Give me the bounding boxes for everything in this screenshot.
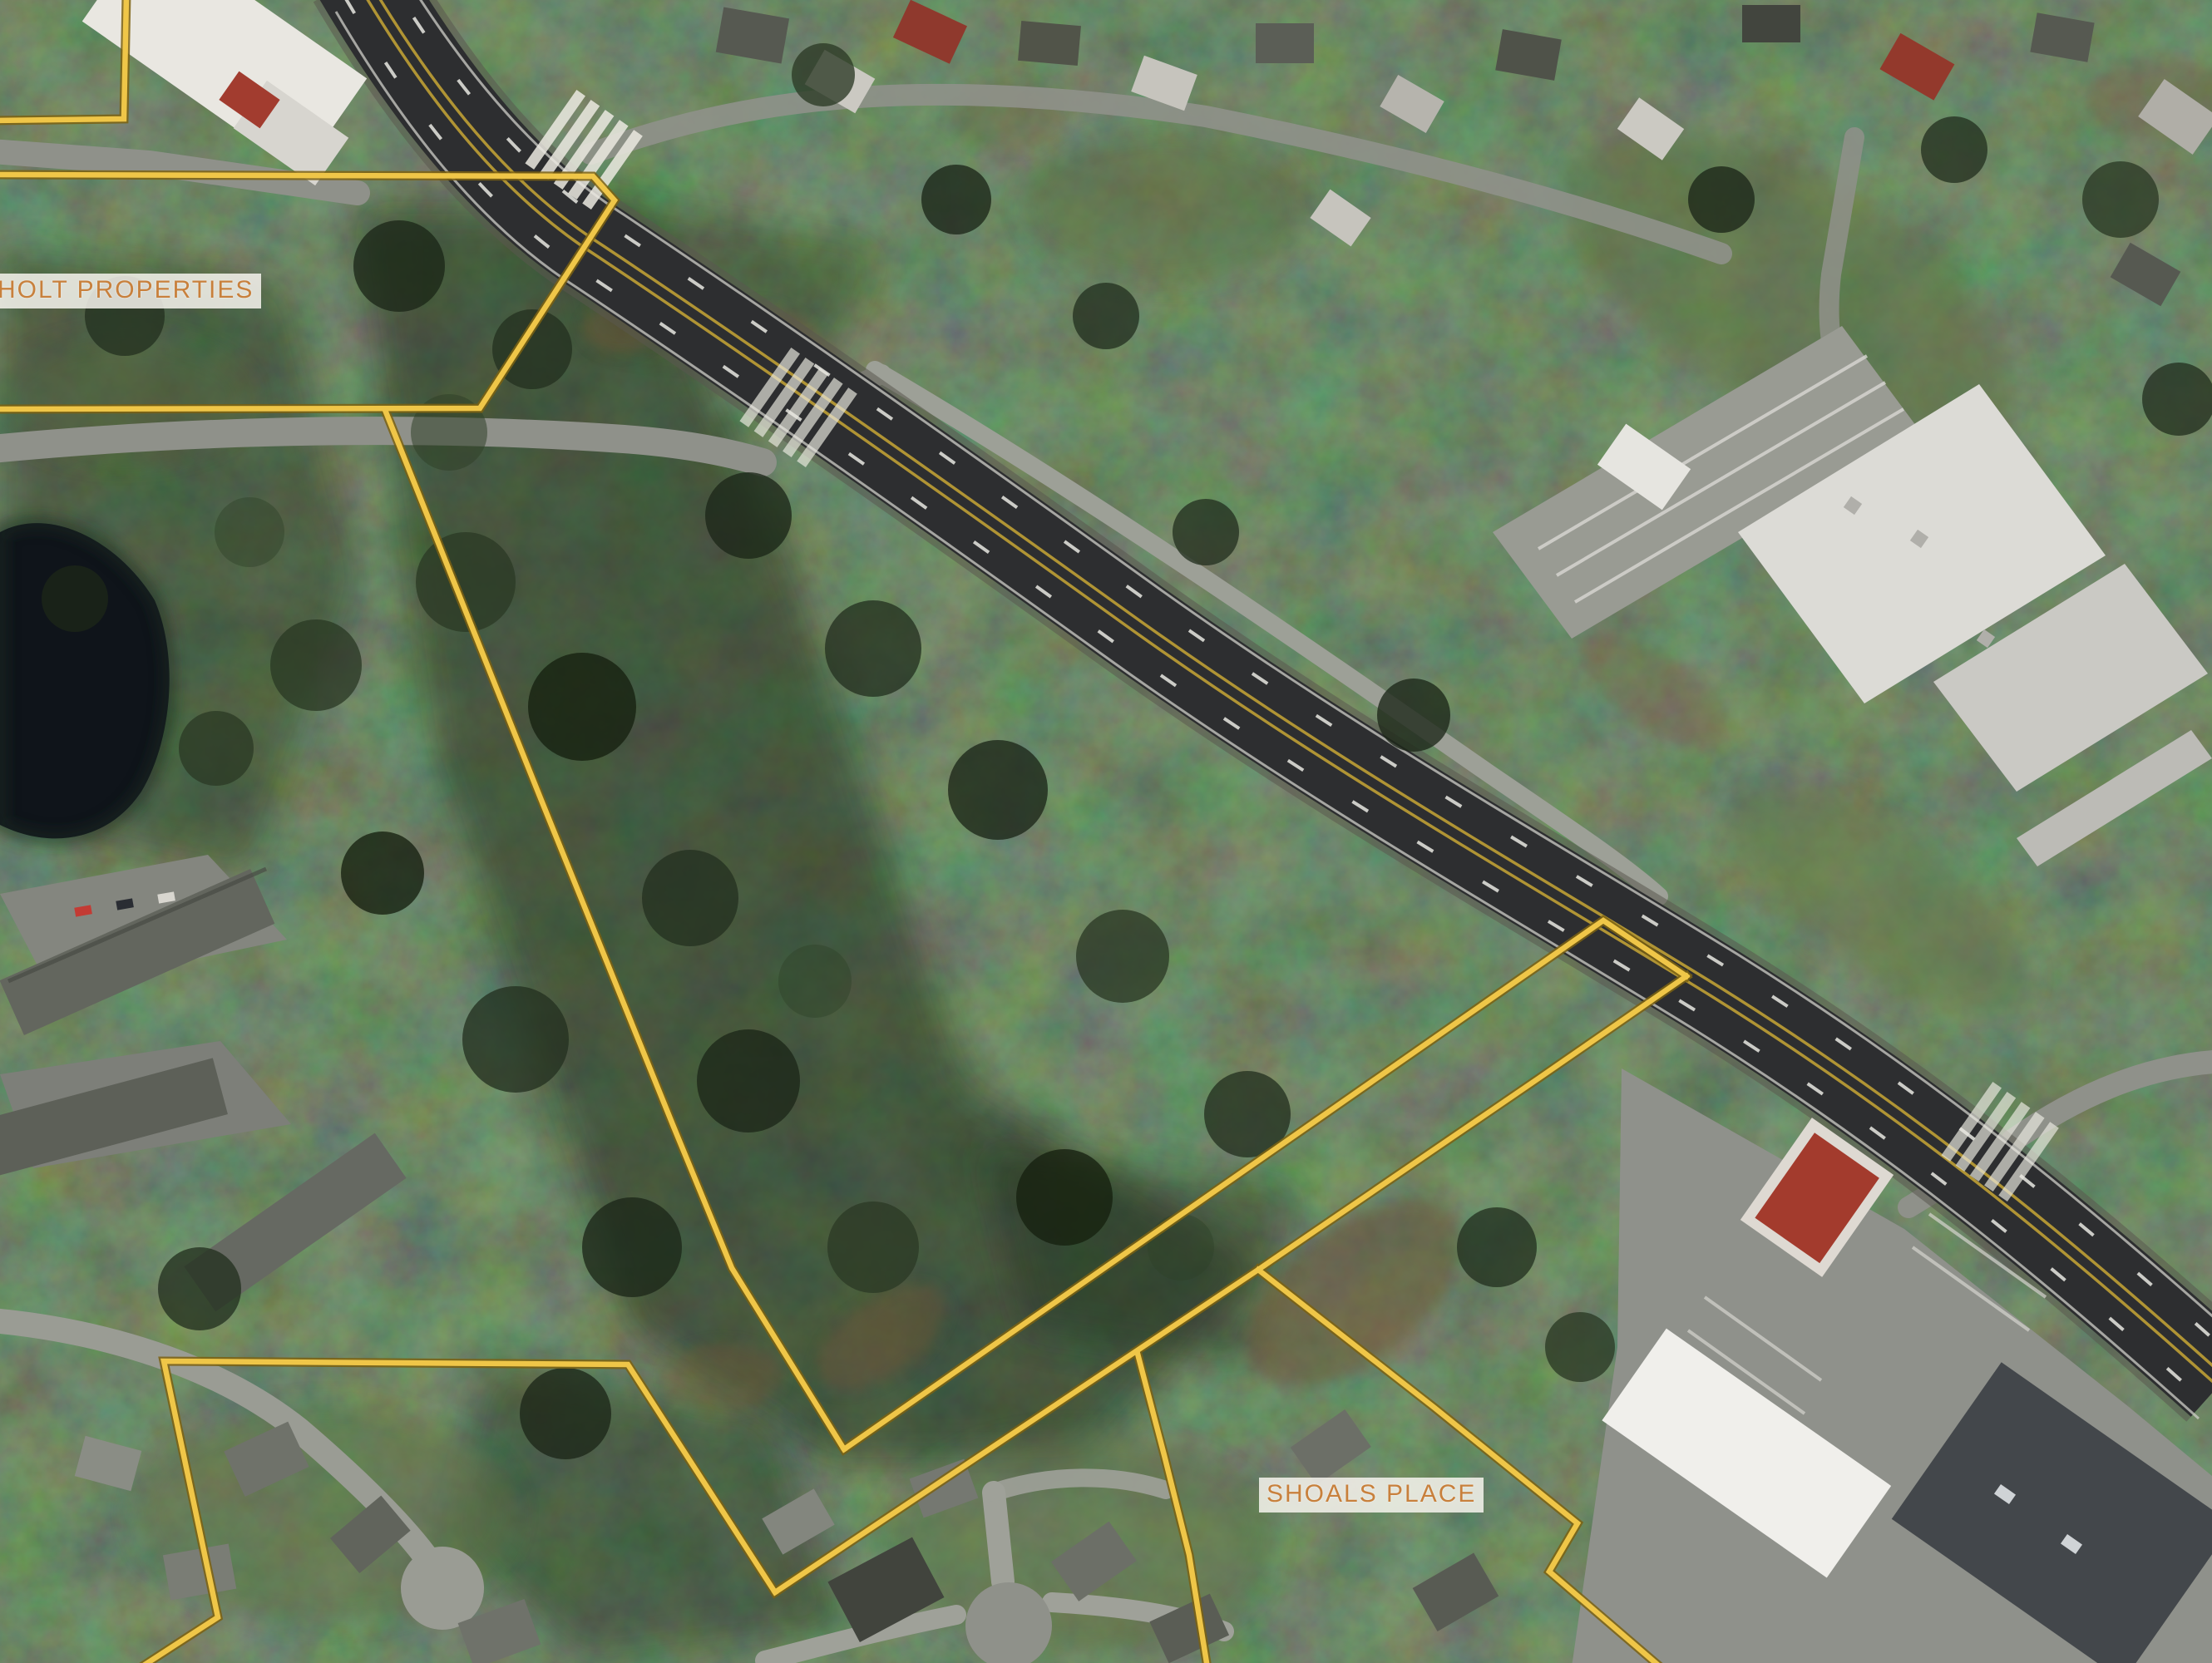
parcel-label-shoals-place: SHOALS PLACE bbox=[1259, 1478, 1484, 1512]
satellite-map-viewport[interactable]: HOLT PROPERTIES SHOALS PLACE bbox=[0, 0, 2212, 1663]
parcel-label-holt-properties: HOLT PROPERTIES bbox=[0, 274, 261, 308]
satellite-imagery bbox=[0, 0, 2212, 1663]
